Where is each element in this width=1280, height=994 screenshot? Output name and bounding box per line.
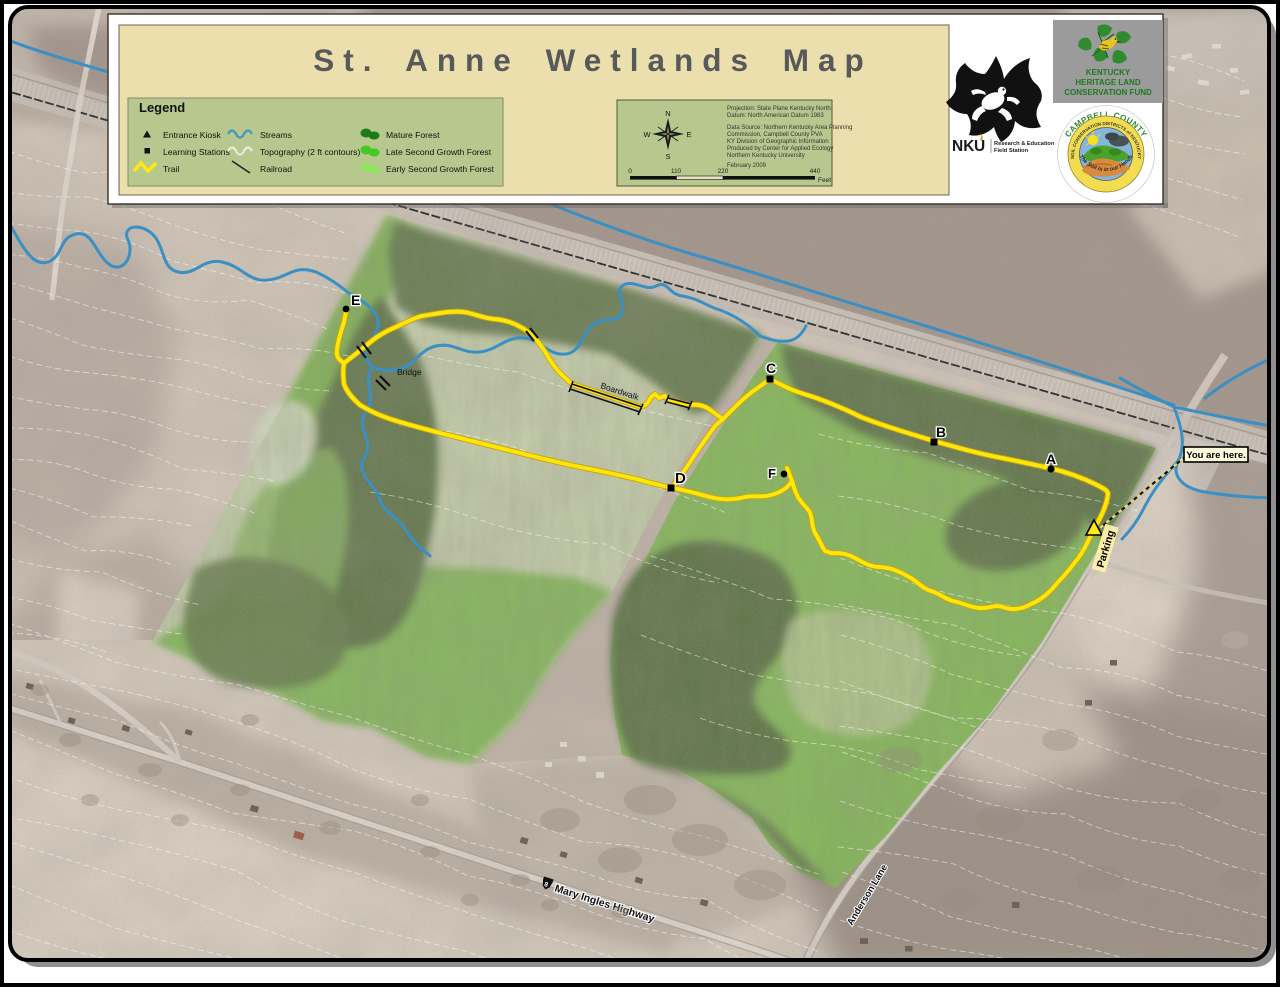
svg-text:C: C <box>766 360 776 376</box>
svg-text:220: 220 <box>718 168 729 175</box>
svg-text:Legend: Legend <box>139 100 185 115</box>
svg-text:St. Anne Wetlands Map: St. Anne Wetlands Map <box>313 42 873 78</box>
svg-text:N: N <box>665 109 670 118</box>
svg-text:Streams: Streams <box>260 130 292 140</box>
svg-text:A: A <box>1046 451 1056 467</box>
svg-text:Early Second Growth Forest: Early Second Growth Forest <box>386 164 495 174</box>
svg-text:440: 440 <box>810 168 821 175</box>
svg-text:February 2009: February 2009 <box>727 163 767 169</box>
svg-text:KENTUCKY: KENTUCKY <box>1086 68 1131 77</box>
svg-text:Field Station: Field Station <box>994 148 1029 154</box>
svg-text:B: B <box>936 424 946 440</box>
svg-text:Bridge: Bridge <box>397 367 422 377</box>
svg-text:HERITAGE LAND: HERITAGE LAND <box>1075 78 1140 87</box>
svg-text:Entrance Kiosk: Entrance Kiosk <box>163 130 222 140</box>
svg-text:Railroad: Railroad <box>260 164 292 174</box>
svg-text:F: F <box>768 466 776 481</box>
svg-text:NK: NK <box>952 138 975 155</box>
svg-text:Datum: North American Datum 19: Datum: North American Datum 1983 <box>727 113 824 119</box>
svg-text:Northern Kentucky University: Northern Kentucky University <box>727 153 805 159</box>
svg-text:U: U <box>974 138 985 155</box>
svg-text:CONSERVATION FUND: CONSERVATION FUND <box>1064 88 1152 97</box>
svg-text:Mature Forest: Mature Forest <box>386 130 440 140</box>
svg-text:Learning Stations: Learning Stations <box>163 147 230 157</box>
svg-text:Research & Education: Research & Education <box>994 141 1055 147</box>
svg-text:Topography (2 ft contours): Topography (2 ft contours) <box>260 147 360 157</box>
svg-text:E: E <box>351 292 360 308</box>
svg-text:S: S <box>665 152 670 161</box>
svg-text:Commission, Campbell County PV: Commission, Campbell County PVA <box>727 132 823 138</box>
svg-text:Data Source: Northern Kentucky: Data Source: Northern Kentucky Area Plan… <box>727 125 852 131</box>
svg-text:Late Second Growth Forest: Late Second Growth Forest <box>386 147 492 157</box>
svg-text:0: 0 <box>628 168 632 175</box>
svg-text:E: E <box>686 130 691 139</box>
svg-text:Produced by Center for Applied: Produced by Center for Applied Ecology <box>727 146 833 152</box>
svg-text:Projection: State Plane Kentuc: Projection: State Plane Kentucky North <box>727 106 831 112</box>
svg-text:You are here.: You are here. <box>1186 450 1246 461</box>
svg-text:W: W <box>643 130 651 139</box>
svg-text:D: D <box>675 470 686 487</box>
svg-text:Trail: Trail <box>163 164 179 174</box>
svg-text:110: 110 <box>671 168 682 175</box>
svg-text:Feet: Feet <box>818 177 831 184</box>
svg-text:KY Division of Geographic Info: KY Division of Geographic Information <box>727 139 829 145</box>
